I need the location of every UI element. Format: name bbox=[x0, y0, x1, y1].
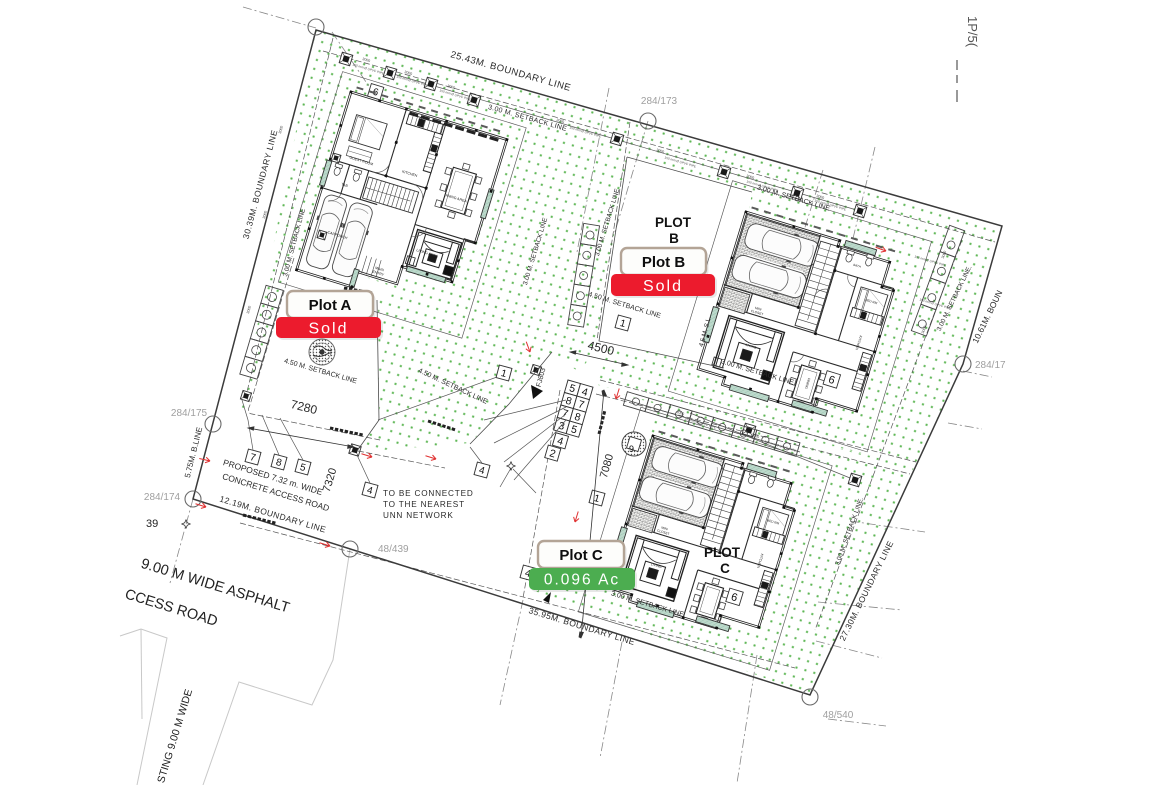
svg-text:284/173: 284/173 bbox=[641, 96, 678, 107]
svg-text:PLOT: PLOT bbox=[704, 545, 741, 560]
svg-text:TO THE NEAREST: TO THE NEAREST bbox=[383, 500, 465, 509]
svg-text:Plot B: Plot B bbox=[642, 254, 685, 271]
svg-text:Plot A: Plot A bbox=[309, 297, 352, 314]
svg-text:PLOT: PLOT bbox=[655, 215, 692, 230]
svg-text:TO BE CONNECTED: TO BE CONNECTED bbox=[383, 489, 474, 498]
svg-text:48/439: 48/439 bbox=[378, 544, 409, 555]
svg-text:284/174: 284/174 bbox=[144, 492, 181, 503]
svg-text:Plot C: Plot C bbox=[559, 547, 602, 564]
svg-text:39: 39 bbox=[146, 518, 158, 530]
svg-text:Sold: Sold bbox=[643, 278, 683, 295]
svg-text:1P/5(: 1P/5( bbox=[965, 16, 980, 48]
svg-text:48/540: 48/540 bbox=[823, 710, 854, 721]
svg-text:C: C bbox=[720, 561, 730, 576]
svg-text:B: B bbox=[669, 231, 679, 246]
svg-text:UNN NETWORK: UNN NETWORK bbox=[383, 511, 454, 520]
svg-text:Sold: Sold bbox=[308, 320, 348, 337]
svg-text:0.096 Ac: 0.096 Ac bbox=[544, 572, 620, 589]
svg-text:284/17: 284/17 bbox=[975, 360, 1006, 371]
svg-text:9: 9 bbox=[629, 444, 634, 454]
svg-text:284/175: 284/175 bbox=[171, 408, 208, 419]
